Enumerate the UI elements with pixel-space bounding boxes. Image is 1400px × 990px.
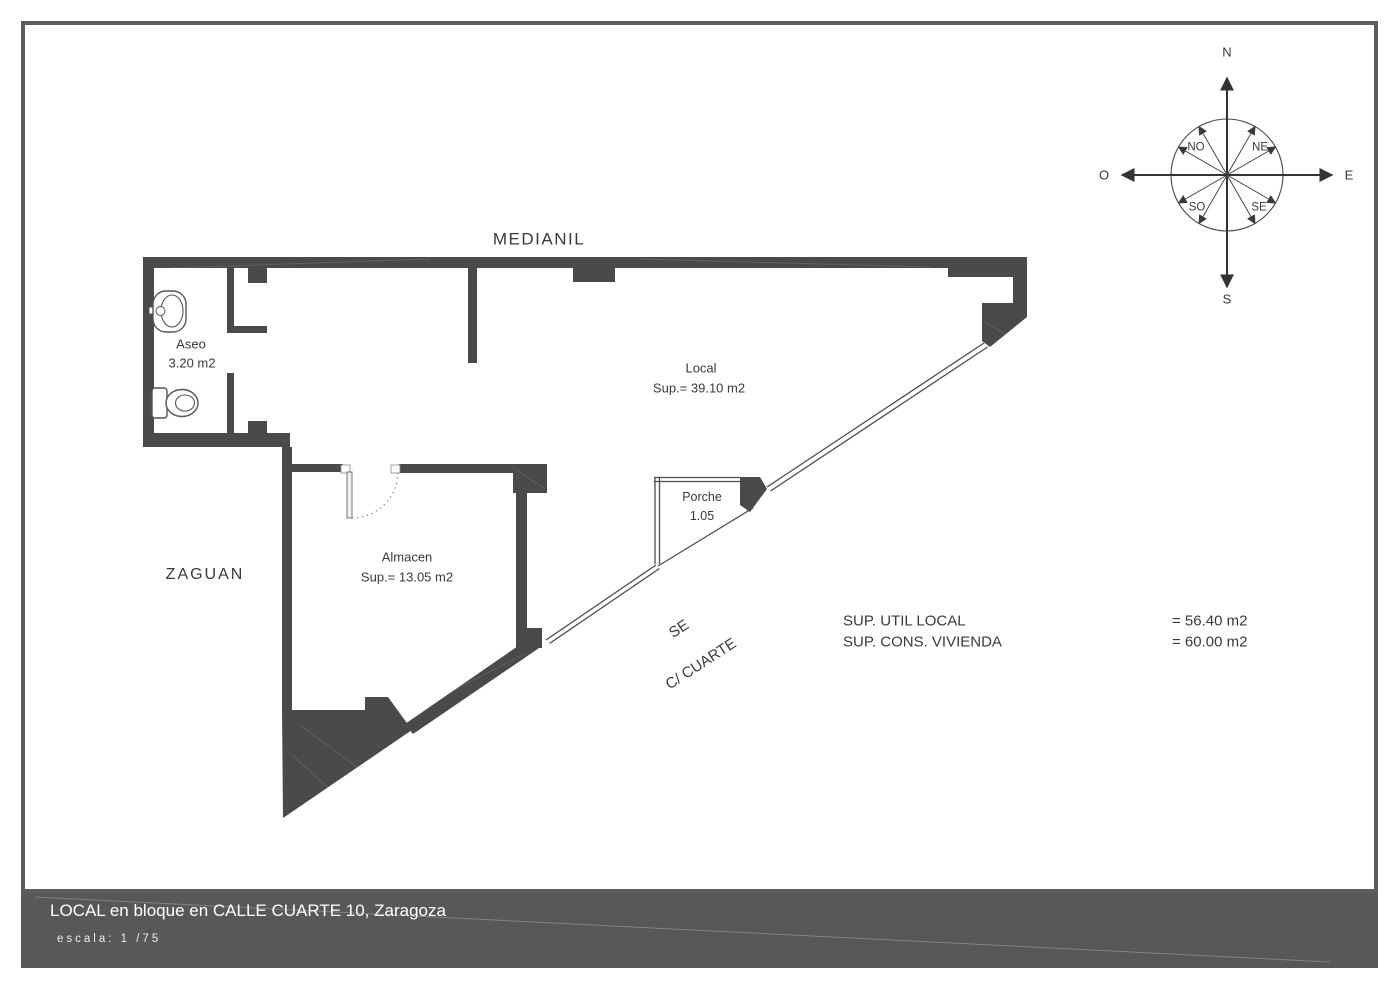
bathroom-fixtures	[149, 291, 198, 418]
compass-west-label: O	[1099, 169, 1109, 182]
wall-almacen-top-right	[399, 464, 515, 473]
glazing-facade-upper-b	[771, 347, 988, 491]
interior-walls	[227, 268, 615, 435]
wall-almacen-jog	[516, 628, 542, 648]
compass-east-label: E	[1345, 169, 1354, 182]
drawing-sheet: MEDIANIL Aseo 3.20 m2 Local Sup.= 39.10 …	[0, 0, 1400, 990]
wall-aseo-right-lower	[227, 373, 234, 435]
wall-right-column	[1013, 257, 1027, 317]
compass-axes	[1122, 78, 1332, 287]
wall-street-diagonal	[405, 646, 542, 734]
wall-almacen-right	[516, 493, 527, 630]
summary-value-util-local: = 56.40 m2	[1172, 614, 1247, 629]
compass-rose	[1122, 78, 1332, 287]
summary-value-cons-vivienda: = 60.00 m2	[1172, 635, 1247, 650]
zaguan-label: ZAGUAN	[166, 567, 245, 583]
glazing-facade-lower-a	[546, 565, 656, 640]
door-swing-arc	[352, 472, 398, 518]
almacen-room-label: Almacen	[382, 551, 433, 564]
pilaster-top-mid	[573, 268, 615, 282]
sheet-scale: escala: 1 /75	[57, 933, 161, 945]
wall-notch-ledge	[982, 303, 1013, 317]
sheet-title: LOCAL en bloque en CALLE CUARTE 10, Zara…	[50, 901, 446, 921]
wall-aseo-right-upper	[227, 268, 234, 330]
wall-almacen-corner	[513, 464, 547, 493]
summary-label-cons-vivienda: SUP. CONS. VIVIENDA	[843, 635, 1002, 650]
almacen-door	[341, 465, 400, 518]
compass-northwest-label: NO	[1187, 142, 1204, 154]
aseo-room-label: Aseo	[176, 338, 206, 351]
sink-icon	[149, 291, 186, 332]
pilaster-bottom-left	[248, 421, 267, 435]
wall-zaguan	[282, 447, 292, 713]
wall-top-step	[948, 268, 1013, 277]
glazing-facade-upper-a	[767, 343, 984, 487]
door-leaf	[347, 472, 352, 518]
door-jamb-right	[391, 465, 400, 473]
aseo-area-label: 3.20 m2	[169, 357, 216, 370]
wall-local-partition	[468, 268, 477, 363]
local-area-label: Sup.= 39.10 m2	[653, 382, 745, 395]
almacen-area-label: Sup.= 13.05 m2	[361, 571, 453, 584]
exterior-walls	[143, 257, 1027, 818]
compass-southeast-label: SE	[1251, 202, 1266, 214]
wall-aseo-stub	[227, 326, 267, 333]
wall-corner-northeast	[982, 317, 1027, 347]
summary-label-util-local: SUP. UTIL LOCAL	[843, 614, 966, 629]
wall-porche-post	[740, 477, 767, 512]
local-room-label: Local	[685, 362, 716, 375]
wall-almacen-top-left	[292, 464, 343, 472]
page-frame	[23, 23, 1376, 891]
medianil-label: MEDIANIL	[493, 231, 585, 248]
compass-south-label: S	[1223, 293, 1232, 306]
glazing-lines	[546, 343, 988, 644]
wall-aseo-bottom	[143, 433, 290, 447]
pilaster-top-left	[248, 268, 267, 283]
wall-left	[143, 257, 154, 447]
porche-area-label: 1.05	[690, 510, 714, 523]
compass-southwest-label: SO	[1189, 202, 1206, 214]
toilet-icon	[152, 388, 198, 418]
wall-street-triangle	[282, 697, 412, 818]
compass-northeast-label: NE	[1252, 142, 1268, 154]
porche-room-label: Porche	[682, 491, 722, 504]
glazing-facade-lower-b	[550, 569, 660, 644]
compass-north-label: N	[1222, 46, 1231, 59]
